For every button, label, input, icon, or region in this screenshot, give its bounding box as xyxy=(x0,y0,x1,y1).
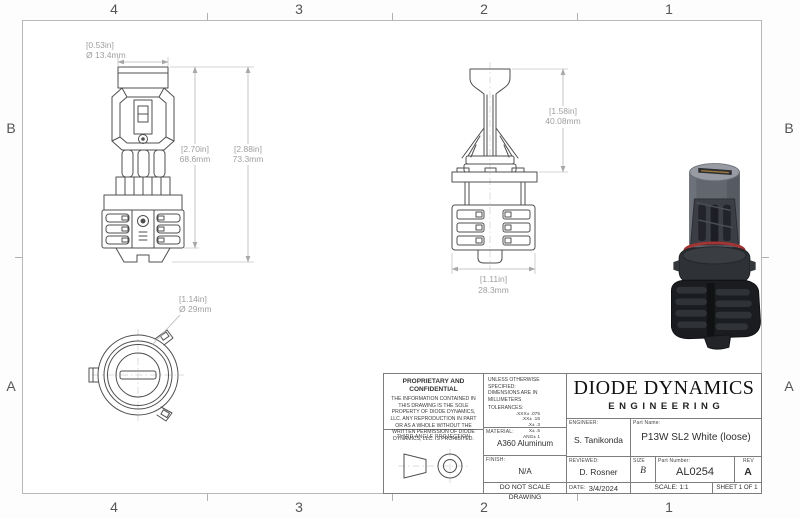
front-body-height-in: [2.70in] xyxy=(181,144,209,154)
date-cell: DATE: 3/4/2024 xyxy=(567,483,631,493)
part-number-value: AL0254 xyxy=(656,466,734,478)
scale-cell: SCALE: 1:1 xyxy=(631,483,713,493)
do-not-scale-text: DO NOT SCALE DRAWING xyxy=(484,483,566,503)
date-value: 3/4/2024 xyxy=(589,484,618,493)
bottom-view-outline xyxy=(89,329,184,421)
reviewed-cell: REVIEWED: D. Rosner xyxy=(567,457,631,483)
zone-tick xyxy=(15,257,22,258)
finish-label: FINISH: xyxy=(486,457,505,463)
engineer-label: ENGINEER: xyxy=(569,420,598,426)
front-view-dimension-labels: [0.53in] Ø 13.4mm [2.70in] 68.6mm [2.88i… xyxy=(86,40,267,165)
finish-value: N/A xyxy=(484,467,566,476)
material-cell: MATERIAL: A360 Aluminum xyxy=(484,428,567,456)
proprietary-title: PROPRIETARY AND CONFIDENTIAL xyxy=(403,378,465,394)
part-name-value: P13W SL2 White (loose) xyxy=(631,432,761,443)
engineer-value: S. Tanikonda xyxy=(567,435,630,445)
rev-cell: REV A xyxy=(735,457,761,483)
reviewed-label: REVIEWED: xyxy=(569,458,599,464)
part-number-cell: Part Number: AL0254 xyxy=(656,457,735,483)
rev-label: REV xyxy=(743,458,754,464)
bottom-diameter-in: [1.14in] xyxy=(179,294,207,304)
front-view: [0.53in] Ø 13.4mm [2.70in] 68.6mm [2.88i… xyxy=(78,38,278,270)
zone-tick xyxy=(577,494,578,501)
sheet-text: SHEET 1 OF 1 xyxy=(713,483,761,493)
do-not-scale-cell: DO NOT SCALE DRAWING xyxy=(484,483,567,493)
company-logo-line1: DIODE DYNAMICS xyxy=(567,377,761,400)
size-value: B xyxy=(631,466,655,476)
bottom-view: [1.14in] Ø 29mm xyxy=(78,288,243,428)
third-angle-cell: THIRD ANGLE PROJECTION xyxy=(384,430,484,493)
zone-tick xyxy=(392,494,393,501)
proprietary-cell: PROPRIETARY AND CONFIDENTIAL THE INFORMA… xyxy=(384,374,484,430)
date-label: DATE: xyxy=(569,485,586,491)
zone-label-bottom-1: 1 xyxy=(654,499,684,515)
side-view-outline xyxy=(452,69,537,263)
zone-label-left-B: B xyxy=(4,120,18,136)
third-angle-label: THIRD ANGLE PROJECTION xyxy=(384,434,483,440)
front-diameter-in: [0.53in] xyxy=(86,40,114,50)
unless-otherwise-specified: UNLESS OTHERWISE SPECIFIED: xyxy=(488,377,566,390)
material-label: MATERIAL: xyxy=(486,429,514,435)
side-base-width-mm: 28.3mm xyxy=(478,285,509,295)
third-angle-projection-icon xyxy=(396,445,472,487)
side-view: [1.58in] 40.08mm [1.11in] 28.3mm xyxy=(408,48,613,303)
front-total-height-mm: 73.3mm xyxy=(233,154,264,164)
front-diameter-mm: Ø 13.4mm xyxy=(86,50,126,60)
finish-cell: FINISH: N/A xyxy=(484,456,567,483)
zone-label-bottom-4: 4 xyxy=(99,499,129,515)
company-logo-line2: ENGINEERING xyxy=(567,401,761,412)
zone-label-bottom-3: 3 xyxy=(284,499,314,515)
zone-tick xyxy=(577,13,578,20)
front-body-height-mm: 68.6mm xyxy=(180,154,211,164)
side-view-dimension-labels: [1.58in] 40.08mm [1.11in] 28.3mm xyxy=(478,106,584,295)
logo-cell: DIODE DYNAMICS ENGINEERING xyxy=(567,374,761,419)
part-name-cell: Part Name: P13W SL2 White (loose) xyxy=(631,419,761,457)
zone-label-right-B: B xyxy=(782,120,796,136)
size-label: SIZE xyxy=(633,458,645,464)
front-total-height-in: [2.88in] xyxy=(234,144,262,154)
bottom-diameter-mm: Ø 29mm xyxy=(179,304,212,314)
zone-label-top-4: 4 xyxy=(99,1,129,17)
size-cell: SIZE B xyxy=(631,457,656,483)
reviewed-value: D. Rosner xyxy=(567,467,630,477)
tolerances-cell: UNLESS OTHERWISE SPECIFIED: DIMENSIONS A… xyxy=(484,374,567,428)
side-blade-height-mm: 40.08mm xyxy=(545,116,580,126)
front-view-outline xyxy=(102,67,184,262)
zone-label-top-3: 3 xyxy=(284,1,314,17)
material-value: A360 Aluminum xyxy=(484,439,566,448)
zone-label-right-A: A xyxy=(782,378,796,394)
iso-bulb xyxy=(671,164,760,350)
iso-render-view xyxy=(660,155,770,350)
zone-tick xyxy=(207,494,208,501)
sheet-cell: SHEET 1 OF 1 xyxy=(713,483,761,493)
engineer-cell: ENGINEER: S. Tanikonda xyxy=(567,419,631,457)
zone-label-top-2: 2 xyxy=(469,1,499,17)
drawing-sheet: 4 3 2 1 4 3 2 1 B A B A xyxy=(0,0,800,518)
zone-tick xyxy=(392,13,393,20)
rev-value: A xyxy=(735,466,761,478)
part-name-label: Part Name: xyxy=(633,420,660,426)
side-base-width-in: [1.11in] xyxy=(480,274,507,284)
side-blade-height-in: [1.58in] xyxy=(549,106,577,116)
scale-text: SCALE: 1:1 xyxy=(631,483,712,493)
part-number-label: Part Number: xyxy=(658,458,690,464)
zone-label-left-A: A xyxy=(4,378,18,394)
dimensions-units-note: DIMENSIONS ARE IN MILLIMETERS xyxy=(488,390,566,403)
zone-label-top-1: 1 xyxy=(654,1,684,17)
title-block: PROPRIETARY AND CONFIDENTIAL THE INFORMA… xyxy=(383,373,762,494)
zone-tick xyxy=(207,13,208,20)
